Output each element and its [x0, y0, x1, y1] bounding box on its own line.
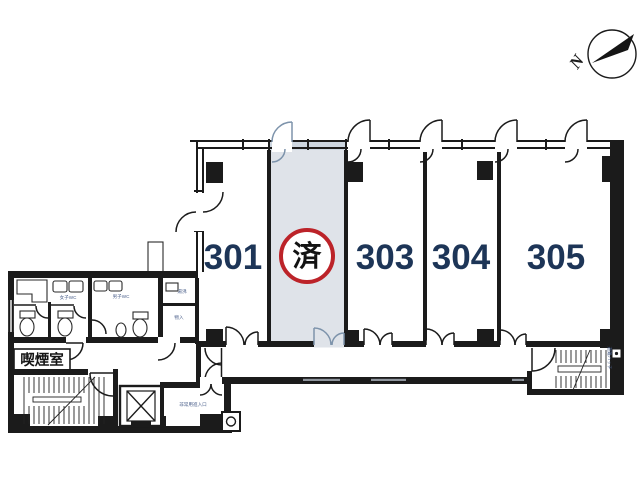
- womens-wc-label: 女子WC: [60, 294, 78, 301]
- room-301-west-door: [176, 192, 223, 232]
- utility-rooms: 湯沸 物入: [166, 283, 187, 321]
- compass-rose: N: [565, 30, 636, 78]
- mens-wc-label: 男子WC: [113, 293, 131, 300]
- pipe-shaft: [148, 242, 163, 272]
- counter: [166, 283, 178, 291]
- utility-east-wall: [195, 278, 199, 344]
- toilet: [58, 318, 72, 336]
- rooms-south-wall: [196, 341, 624, 347]
- utility-divider: [163, 303, 195, 306]
- meter-box: [222, 412, 240, 431]
- hall-note: 非常用進入口: [179, 401, 207, 408]
- floor-plan-page: N: [0, 0, 640, 480]
- wall-304-305: [497, 150, 501, 341]
- room-303-label: 303: [356, 238, 414, 277]
- womens-wc: 女子WC: [14, 280, 86, 338]
- mens-wc: 男子WC: [92, 281, 148, 337]
- stairs-east-block: 避難ハッチ: [527, 347, 624, 395]
- wall-303-304: [423, 150, 427, 341]
- corridor-south-wall: [198, 377, 527, 384]
- toilet: [20, 318, 34, 336]
- elevator: [120, 386, 162, 427]
- smoking-room-label-box: 喫煙室: [14, 349, 70, 371]
- elevator-door: [131, 421, 151, 427]
- room-301-label: 301: [204, 238, 262, 277]
- sink: [94, 281, 107, 291]
- toilet: [133, 319, 147, 337]
- wall-302-303: [344, 150, 348, 341]
- wall-301-302: [267, 150, 271, 341]
- storage-label: 物入: [174, 314, 184, 321]
- north-window-band: [190, 139, 624, 150]
- common-north-wall: [8, 271, 198, 278]
- sold-label: 済: [292, 240, 322, 273]
- room-302-sold-mark: 済: [281, 230, 333, 282]
- urinal: [116, 323, 126, 337]
- north-arrow-icon: [592, 34, 634, 63]
- sink: [53, 281, 67, 292]
- smoking-room-label: 喫煙室: [20, 351, 64, 369]
- wall-wc1-wc2: [88, 278, 92, 338]
- evac-hatch-label: 避難ハッチ: [606, 347, 613, 370]
- main-room-block: 301 303 304 305 済: [148, 120, 624, 348]
- sink: [109, 281, 122, 291]
- wall-wc2-utility: [158, 278, 163, 338]
- hall-double-door: [200, 377, 222, 395]
- stairs-east-south-wall: [527, 389, 624, 395]
- room-305-label: 305: [527, 238, 585, 277]
- common-west-wall: [8, 271, 14, 433]
- corridor: [196, 343, 527, 395]
- room-304-label: 304: [432, 238, 491, 277]
- sink: [69, 281, 83, 292]
- floor-plan-drawing: N: [0, 0, 640, 480]
- compass-north-label: N: [565, 51, 589, 73]
- kitchenette-label: 湯沸: [177, 288, 187, 295]
- wc-closet: [17, 280, 47, 302]
